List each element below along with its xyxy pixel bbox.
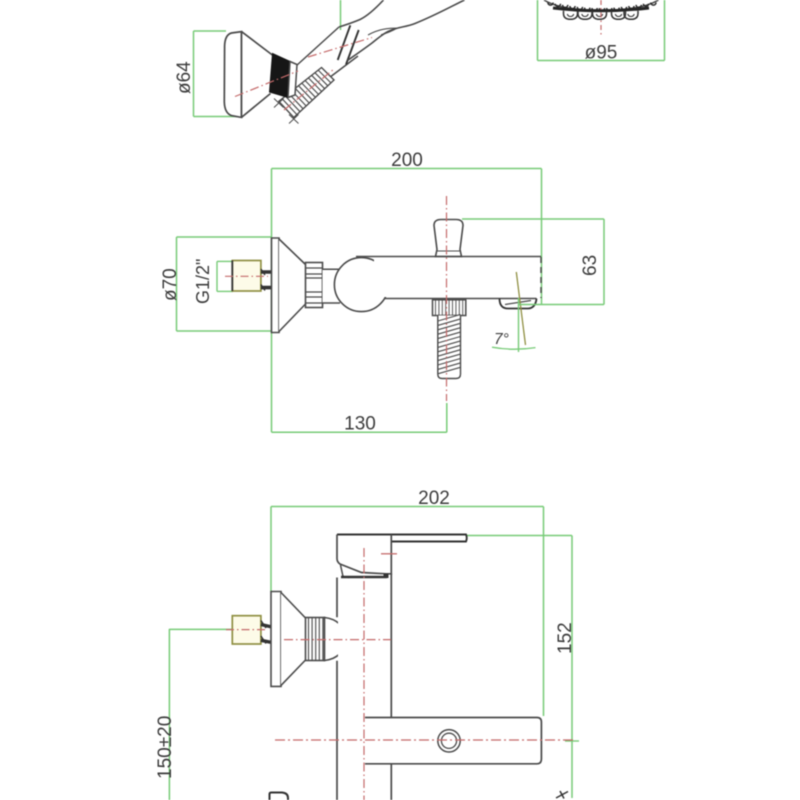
svg-text:ø70: ø70 — [160, 268, 181, 301]
svg-text:130: 130 — [344, 414, 376, 435]
svg-text:202: 202 — [418, 488, 450, 509]
svg-text:7°: 7° — [494, 331, 509, 348]
svg-text:152: 152 — [555, 622, 576, 654]
svg-text:ø64: ø64 — [174, 61, 195, 94]
svg-text:200: 200 — [391, 150, 423, 171]
svg-text:63: 63 — [580, 255, 601, 276]
svg-text:G1/2": G1/2" — [193, 259, 213, 304]
svg-text:ø95: ø95 — [585, 43, 618, 64]
svg-text:150±20: 150±20 — [155, 716, 176, 779]
